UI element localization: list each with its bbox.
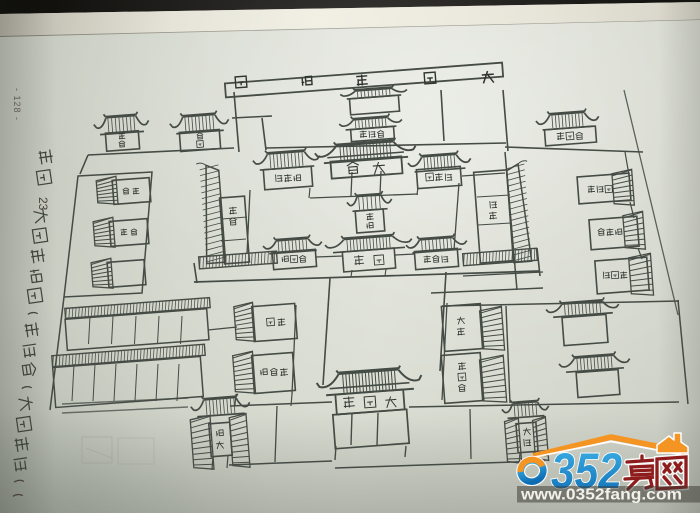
svg-text:- 128 -: - 128 - <box>12 88 22 121</box>
svg-text:23: 23 <box>36 197 50 211</box>
svg-text:www.0352fang.com: www.0352fang.com <box>520 487 682 504</box>
